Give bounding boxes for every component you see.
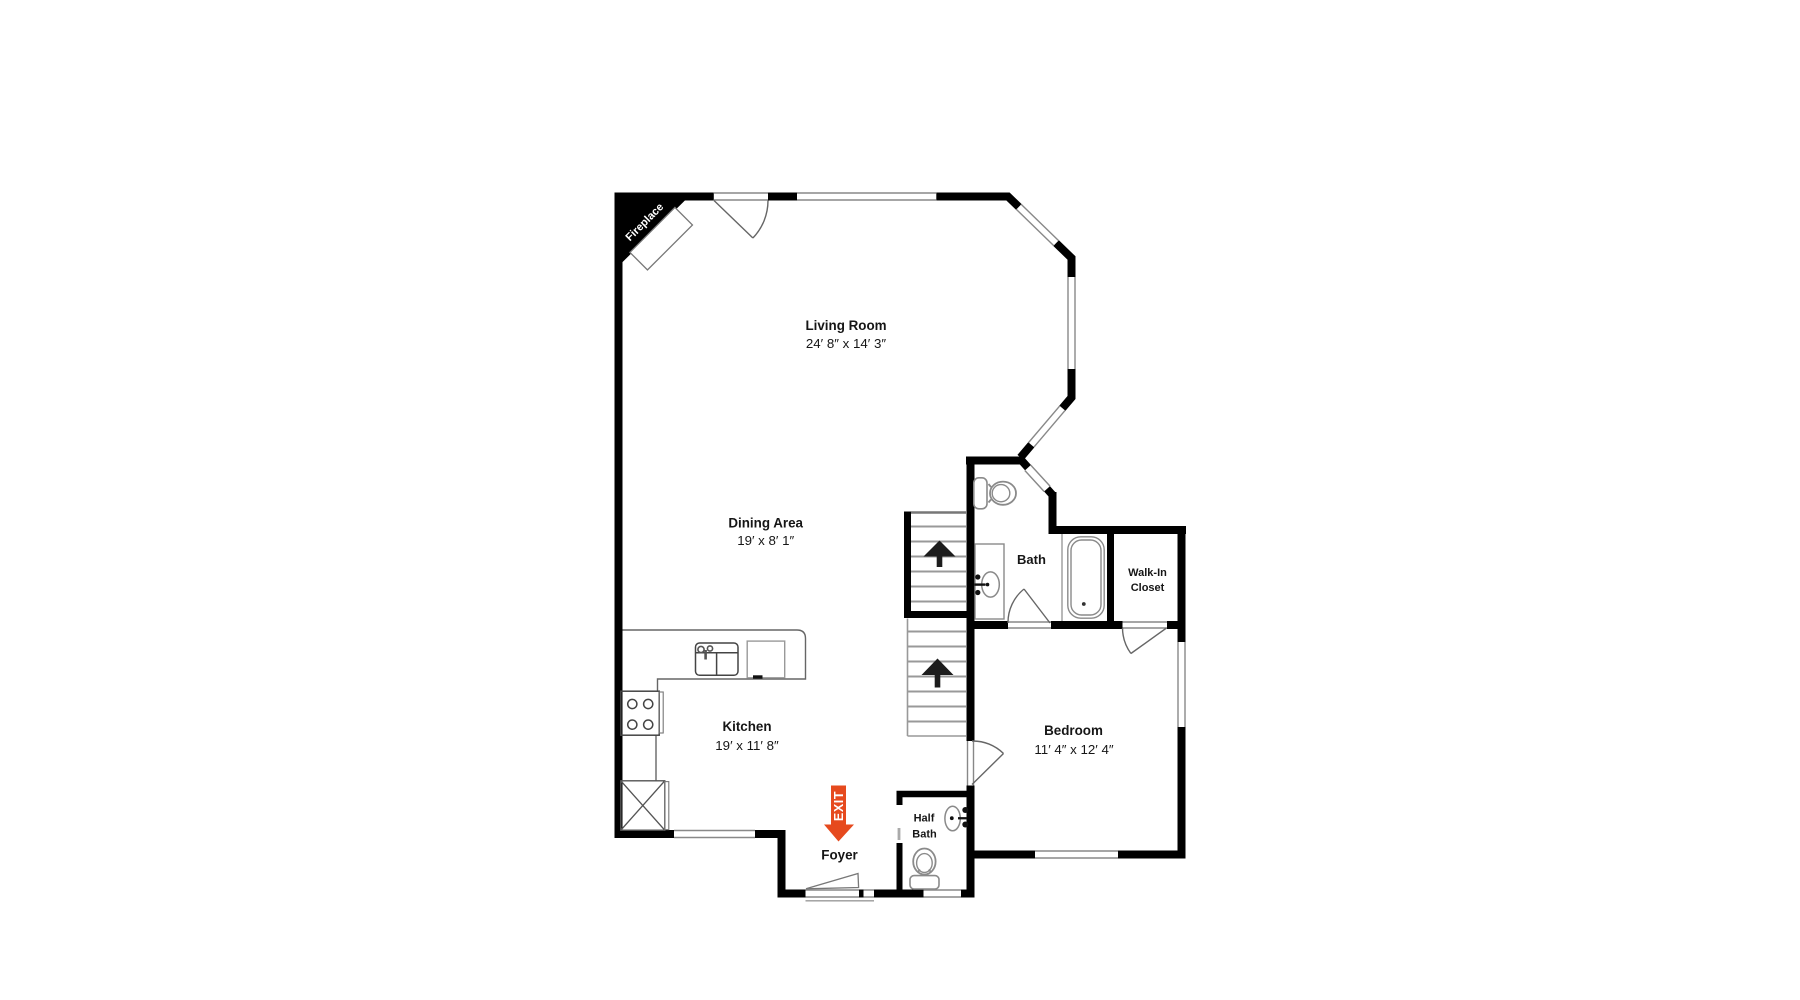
svg-text:Dining Area: Dining Area (728, 516, 803, 531)
svg-text:Bath: Bath (1017, 552, 1046, 567)
svg-text:24′ 8″ x 14′ 3″: 24′ 8″ x 14′ 3″ (806, 336, 886, 351)
svg-text:Half: Half (914, 813, 935, 825)
svg-text:Foyer: Foyer (821, 848, 858, 863)
svg-text:11′ 4″ x 12′ 4″: 11′ 4″ x 12′ 4″ (1034, 742, 1114, 757)
svg-text:Closet: Closet (1131, 582, 1165, 594)
svg-text:EXIT: EXIT (832, 791, 846, 821)
svg-text:Living Room: Living Room (805, 318, 886, 333)
svg-text:Bath: Bath (912, 829, 937, 841)
svg-text:19′ x 11′ 8″: 19′ x 11′ 8″ (715, 738, 779, 753)
svg-text:Bedroom: Bedroom (1044, 723, 1103, 738)
svg-text:Kitchen: Kitchen (722, 719, 771, 734)
svg-text:Walk-In: Walk-In (1128, 567, 1167, 579)
svg-text:19′ x 8′ 1″: 19′ x 8′ 1″ (737, 533, 794, 548)
